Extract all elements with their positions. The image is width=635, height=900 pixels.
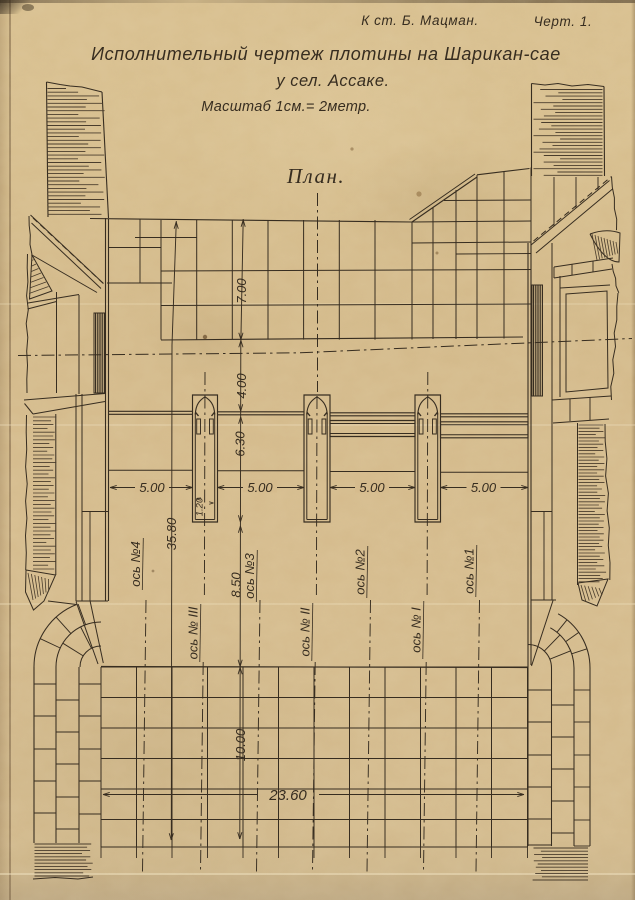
svg-text:у сел. Ассаке.: у сел. Ассаке.: [275, 72, 389, 90]
svg-text:ось № III: ось № III: [186, 606, 201, 659]
svg-text:10.00: 10.00: [233, 728, 248, 761]
svg-text:ось №3: ось №3: [242, 552, 257, 598]
svg-text:ось № II: ось № II: [298, 607, 313, 656]
svg-text:5.00: 5.00: [359, 480, 385, 495]
svg-text:ось №1: ось №1: [462, 548, 477, 594]
svg-text:7.00: 7.00: [234, 278, 249, 304]
svg-text:4.00: 4.00: [234, 373, 249, 399]
svg-text:ось №2: ось №2: [353, 548, 368, 594]
svg-text:Исполнительный чертеж плотины: Исполнительный чертеж плотины на Шарикан…: [91, 44, 561, 64]
svg-text:План.: План.: [286, 164, 345, 188]
svg-text:ось №4: ось №4: [128, 541, 143, 587]
svg-text:5.00: 5.00: [139, 480, 165, 495]
svg-text:6.30: 6.30: [233, 431, 248, 457]
svg-text:Черт. 1.: Черт. 1.: [534, 14, 593, 29]
svg-text:К ст. Б. Мацман.: К ст. Б. Мацман.: [361, 13, 479, 28]
svg-text:5.00: 5.00: [247, 480, 273, 495]
svg-text:ось № I: ось № I: [409, 607, 424, 653]
svg-text:Масштаб 1см.= 2метр.: Масштаб 1см.= 2метр.: [201, 99, 370, 115]
svg-text:35.80: 35.80: [164, 517, 179, 550]
svg-text:23.60: 23.60: [268, 787, 307, 804]
svg-text:5.00: 5.00: [471, 480, 497, 495]
